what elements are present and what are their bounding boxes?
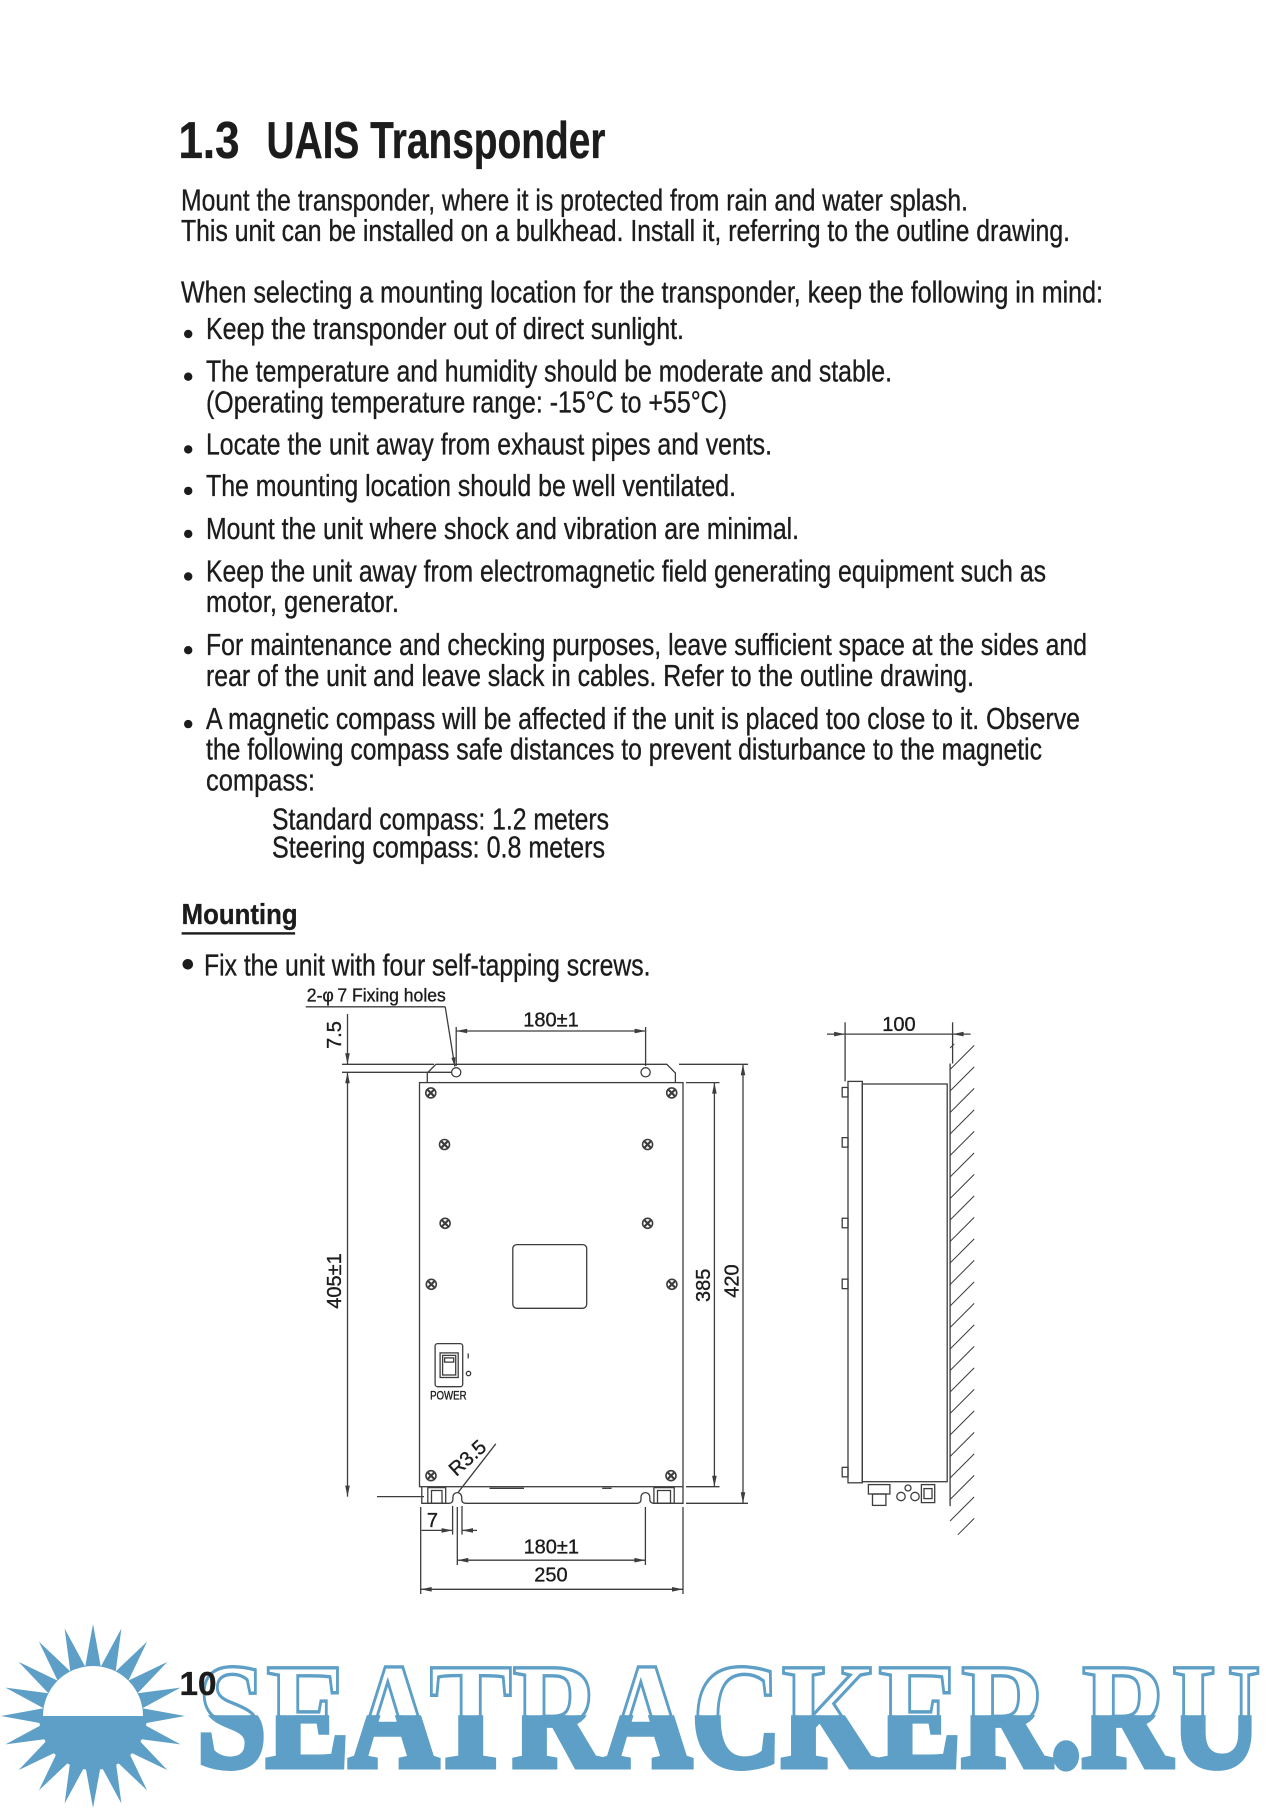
svg-text:180±1: 180±1 (524, 1537, 579, 1559)
svg-text:(Operating temperature range:: (Operating temperature range: -15°C to +… (206, 386, 727, 419)
svg-text:rear of the unit and leave sla: rear of the unit and leave slack in cabl… (206, 660, 974, 693)
svg-text:UAIS Transponder: UAIS Transponder (267, 112, 606, 170)
svg-text:When selecting a mounting loca: When selecting a mounting location for t… (181, 276, 1103, 309)
svg-text:2-φ 7 Fixing holes: 2-φ 7 Fixing holes (307, 985, 446, 1005)
svg-text:the following compass safe dis: the following compass safe distances to … (206, 734, 1042, 767)
svg-text:Mounting: Mounting (182, 899, 298, 931)
svg-text:Locate the unit away from exha: Locate the unit away from exhaust pipes … (206, 428, 772, 461)
svg-text:10: 10 (180, 1665, 217, 1702)
svg-text:Fix the unit with four self-ta: Fix the unit with four self-tapping scre… (204, 950, 651, 983)
svg-text:250: 250 (534, 1565, 567, 1587)
svg-text:405±1: 405±1 (324, 1253, 346, 1308)
svg-text:POWER: POWER (430, 1388, 467, 1402)
svg-text:The temperature and humidity s: The temperature and humidity should be m… (206, 356, 892, 389)
svg-text:Steering compass: 0.8 meters: Steering compass: 0.8 meters (272, 832, 605, 865)
svg-text:motor, generator.: motor, generator. (206, 586, 399, 619)
svg-text:100: 100 (882, 1014, 915, 1036)
svg-text:180±1: 180±1 (523, 1010, 578, 1032)
svg-text:1.3: 1.3 (179, 112, 240, 170)
svg-text:Keep the transponder out of di: Keep the transponder out of direct sunli… (206, 313, 684, 346)
svg-text:385: 385 (693, 1269, 715, 1302)
svg-text:Mount the unit where shock and: Mount the unit where shock and vibration… (206, 513, 799, 546)
svg-text:7: 7 (427, 1510, 438, 1532)
svg-text:A magnetic compass will be aff: A magnetic compass will be affected if t… (206, 703, 1080, 736)
svg-text:The mounting location should b: The mounting location should be well ven… (206, 470, 736, 503)
svg-text:420: 420 (722, 1264, 744, 1297)
svg-text:For maintenance and checking p: For maintenance and checking purposes, l… (206, 629, 1087, 662)
svg-text:7.5: 7.5 (324, 1021, 346, 1049)
svg-text:This unit can be installed on: This unit can be installed on a bulkhead… (181, 215, 1070, 248)
svg-text:Keep the unit away from electr: Keep the unit away from electromagnetic … (206, 556, 1046, 589)
svg-text:Mount the transponder, where i: Mount the transponder, where it is prote… (181, 185, 968, 218)
svg-text:compass:: compass: (206, 764, 315, 797)
